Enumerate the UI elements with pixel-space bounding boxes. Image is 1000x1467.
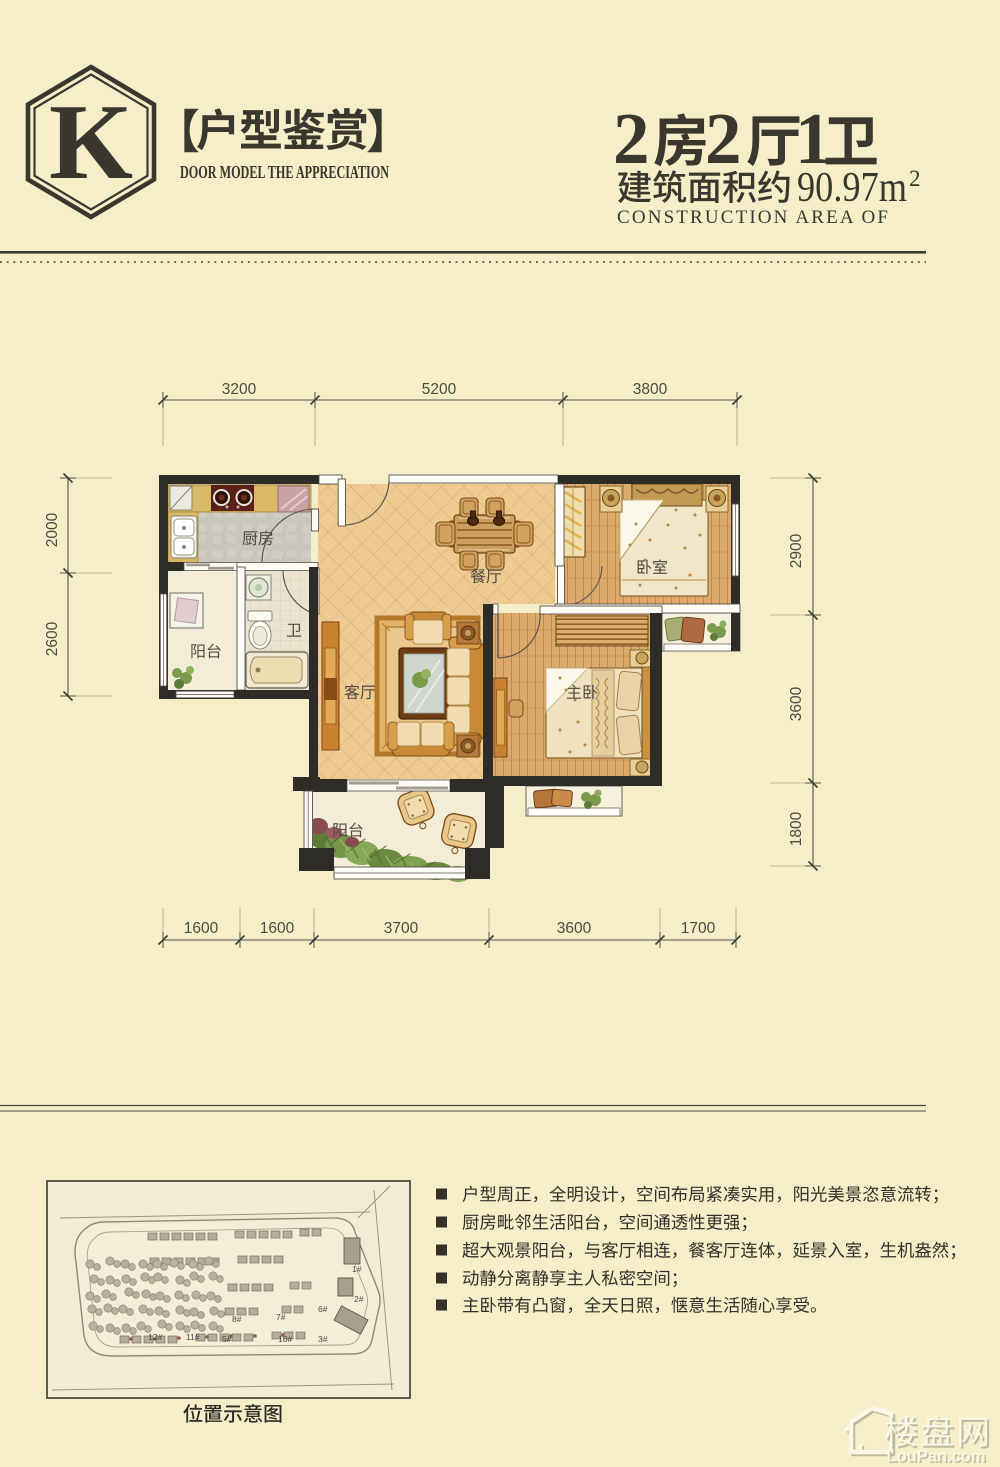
- svg-text:LouPan.com: LouPan.com: [887, 1448, 986, 1466]
- svg-text:K: K: [49, 83, 133, 202]
- svg-text:1#: 1#: [352, 1264, 362, 1274]
- svg-text:2: 2: [909, 166, 921, 191]
- svg-text:90.97m: 90.97m: [797, 165, 907, 211]
- svg-text:1600: 1600: [260, 920, 295, 937]
- svg-text:8#: 8#: [232, 1314, 242, 1324]
- svg-text:6#: 6#: [318, 1304, 328, 1314]
- svg-text:7#: 7#: [276, 1312, 286, 1322]
- svg-text:3200: 3200: [222, 381, 257, 398]
- svg-text:1600: 1600: [184, 920, 219, 937]
- svg-text:3600: 3600: [788, 686, 805, 721]
- svg-text:10#: 10#: [278, 1334, 292, 1344]
- svg-text:3#: 3#: [318, 1334, 328, 1344]
- svg-text:2900: 2900: [788, 533, 805, 568]
- svg-text:2: 2: [613, 98, 650, 179]
- svg-text:3600: 3600: [557, 920, 592, 937]
- svg-text:12#: 12#: [148, 1332, 162, 1342]
- svg-text:2: 2: [705, 98, 742, 179]
- svg-text:DOOR MODEL THE APPRECIATION: DOOR MODEL THE APPRECIATION: [180, 162, 389, 182]
- svg-text:1800: 1800: [788, 811, 805, 846]
- svg-text:1700: 1700: [681, 920, 716, 937]
- svg-text:2#: 2#: [354, 1294, 364, 1304]
- svg-text:CONSTRUCTION AREA OF: CONSTRUCTION AREA OF: [617, 207, 888, 228]
- svg-text:2000: 2000: [44, 512, 61, 547]
- svg-text:3700: 3700: [384, 920, 419, 937]
- svg-text:5#: 5#: [222, 1334, 232, 1344]
- svg-text:5200: 5200: [422, 381, 457, 398]
- svg-text:3800: 3800: [633, 381, 668, 398]
- svg-text:11#: 11#: [186, 1332, 200, 1342]
- svg-text:2600: 2600: [44, 621, 61, 656]
